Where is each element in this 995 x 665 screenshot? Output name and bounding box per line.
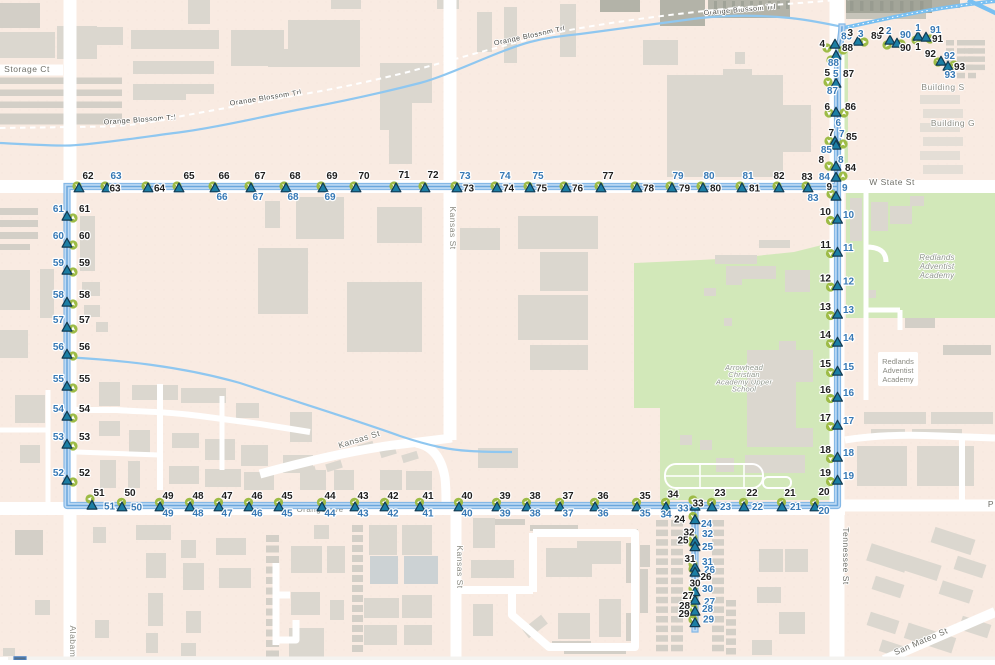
svg-text:24: 24 (674, 515, 686, 526)
svg-text:45: 45 (281, 491, 293, 502)
svg-text:67: 67 (254, 171, 266, 182)
svg-text:87: 87 (843, 69, 855, 80)
svg-text:6: 6 (835, 118, 841, 129)
svg-text:35: 35 (639, 491, 651, 502)
svg-text:8: 8 (838, 155, 844, 166)
svg-text:42: 42 (387, 491, 399, 502)
svg-text:Kansas St: Kansas St (448, 206, 458, 249)
svg-text:79: 79 (672, 171, 684, 182)
svg-text:32: 32 (702, 529, 714, 540)
svg-text:Adventist: Adventist (883, 366, 915, 375)
svg-text:18: 18 (820, 445, 832, 456)
svg-text:8: 8 (818, 155, 824, 166)
svg-text:W State St: W State St (869, 177, 915, 187)
svg-text:44: 44 (324, 491, 336, 502)
svg-text:39: 39 (499, 491, 511, 502)
svg-text:15: 15 (820, 359, 832, 370)
svg-text:Building S: Building S (921, 82, 964, 92)
svg-text:69: 69 (324, 192, 336, 203)
svg-text:90: 90 (900, 30, 912, 41)
svg-text:73: 73 (463, 184, 475, 195)
svg-text:25: 25 (702, 542, 714, 553)
svg-text:25: 25 (677, 536, 689, 547)
svg-text:49: 49 (162, 491, 174, 502)
svg-text:53: 53 (79, 432, 91, 443)
svg-text:7: 7 (828, 128, 834, 139)
svg-text:Kansas St: Kansas St (455, 545, 465, 588)
svg-text:84: 84 (819, 172, 831, 183)
svg-text:Redlands: Redlands (882, 357, 914, 366)
svg-text:86: 86 (845, 102, 857, 113)
svg-text:Adventist: Adventist (919, 262, 955, 271)
svg-text:38: 38 (529, 491, 541, 502)
svg-text:60: 60 (79, 231, 91, 242)
svg-text:65: 65 (183, 171, 195, 182)
svg-text:Building G: Building G (931, 118, 975, 128)
svg-text:58: 58 (53, 290, 65, 301)
svg-text:52: 52 (53, 468, 65, 479)
svg-text:93: 93 (944, 70, 956, 81)
svg-text:14: 14 (843, 333, 855, 344)
svg-text:31: 31 (684, 554, 696, 565)
svg-text:Alabama St: Alabama St (68, 626, 78, 660)
svg-text:76: 76 (572, 184, 584, 195)
svg-text:88: 88 (842, 43, 854, 54)
svg-text:75: 75 (532, 171, 544, 182)
svg-text:7: 7 (839, 129, 845, 140)
svg-text:1: 1 (915, 23, 921, 34)
svg-text:44: 44 (324, 509, 336, 520)
svg-text:51: 51 (104, 502, 116, 513)
svg-text:38: 38 (529, 509, 541, 520)
svg-text:22: 22 (752, 502, 764, 513)
svg-text:30: 30 (702, 584, 714, 595)
svg-text:77: 77 (602, 171, 614, 182)
svg-text:93: 93 (954, 62, 966, 73)
svg-text:67: 67 (252, 192, 264, 203)
svg-text:40: 40 (461, 509, 473, 520)
svg-text:Academy: Academy (919, 271, 956, 280)
svg-text:21: 21 (790, 502, 802, 513)
svg-text:52: 52 (79, 468, 91, 479)
svg-text:84: 84 (845, 163, 857, 174)
svg-text:61: 61 (79, 204, 91, 215)
svg-text:17: 17 (843, 416, 855, 427)
svg-text:9: 9 (826, 182, 832, 193)
svg-text:57: 57 (79, 315, 91, 326)
svg-text:55: 55 (79, 374, 91, 385)
svg-text:28: 28 (702, 604, 714, 615)
svg-text:Tennessee St: Tennessee St (841, 527, 851, 585)
svg-text:92: 92 (925, 49, 937, 60)
svg-text:48: 48 (192, 509, 204, 520)
svg-text:29: 29 (678, 609, 690, 620)
svg-text:3: 3 (847, 28, 853, 39)
svg-text:72: 72 (427, 170, 439, 181)
svg-text:29: 29 (703, 615, 715, 626)
svg-text:82: 82 (773, 171, 785, 182)
svg-text:75: 75 (536, 184, 548, 195)
svg-text:37: 37 (562, 509, 574, 520)
svg-text:50: 50 (131, 503, 143, 514)
svg-text:6: 6 (824, 102, 830, 113)
svg-text:54: 54 (79, 404, 91, 415)
svg-text:20: 20 (818, 506, 830, 517)
svg-text:20: 20 (818, 487, 830, 498)
svg-text:15: 15 (843, 362, 855, 373)
svg-text:90: 90 (900, 43, 912, 54)
svg-text:47: 47 (221, 509, 233, 520)
svg-text:37: 37 (562, 491, 574, 502)
svg-text:23: 23 (720, 502, 732, 513)
svg-text:83: 83 (801, 172, 813, 183)
svg-text:34: 34 (667, 490, 679, 501)
svg-text:5: 5 (824, 68, 830, 79)
svg-text:85: 85 (846, 132, 858, 143)
svg-text:40: 40 (461, 491, 473, 502)
svg-text:22: 22 (746, 488, 758, 499)
svg-text:64: 64 (154, 184, 166, 195)
svg-text:63: 63 (109, 184, 121, 195)
svg-text:3: 3 (858, 29, 864, 40)
svg-text:12: 12 (843, 277, 855, 288)
svg-text:Storage Ct: Storage Ct (4, 64, 50, 74)
svg-text:73: 73 (459, 171, 471, 182)
svg-text:19: 19 (843, 471, 855, 482)
svg-text:12: 12 (820, 274, 832, 285)
svg-text:53: 53 (53, 432, 65, 443)
svg-text:16: 16 (820, 385, 832, 396)
svg-text:92: 92 (944, 51, 956, 62)
svg-text:66: 66 (218, 171, 230, 182)
svg-text:49: 49 (162, 509, 174, 520)
svg-text:60: 60 (53, 231, 65, 242)
svg-text:Redlands: Redlands (919, 253, 954, 262)
svg-text:13: 13 (820, 302, 832, 313)
svg-text:17: 17 (820, 413, 832, 424)
svg-text:36: 36 (597, 491, 609, 502)
svg-text:23: 23 (714, 488, 726, 499)
svg-text:57: 57 (53, 315, 65, 326)
svg-text:81: 81 (749, 184, 761, 195)
svg-text:5: 5 (833, 69, 839, 80)
svg-text:43: 43 (357, 491, 369, 502)
svg-text:58: 58 (79, 290, 91, 301)
svg-text:66: 66 (216, 192, 228, 203)
svg-text:18: 18 (843, 448, 855, 459)
svg-text:19: 19 (820, 468, 832, 479)
svg-text:61: 61 (53, 204, 65, 215)
svg-text:74: 74 (499, 171, 511, 182)
svg-text:55: 55 (53, 374, 65, 385)
svg-text:87: 87 (827, 86, 839, 97)
svg-text:4: 4 (819, 39, 825, 50)
svg-text:16: 16 (843, 388, 855, 399)
svg-text:48: 48 (192, 491, 204, 502)
svg-text:9: 9 (842, 183, 848, 194)
svg-text:56: 56 (53, 342, 65, 353)
svg-text:50: 50 (124, 488, 136, 499)
svg-text:10: 10 (820, 207, 832, 218)
svg-text:42: 42 (387, 509, 399, 520)
svg-text:11: 11 (843, 243, 854, 254)
svg-text:56: 56 (79, 342, 91, 353)
svg-text:54: 54 (53, 404, 65, 415)
svg-text:26: 26 (700, 572, 712, 583)
svg-text:46: 46 (251, 509, 263, 520)
svg-text:1: 1 (915, 42, 921, 53)
svg-text:91: 91 (932, 34, 944, 45)
svg-text:14: 14 (820, 330, 832, 341)
svg-text:47: 47 (221, 491, 233, 502)
svg-text:33: 33 (677, 504, 689, 515)
svg-text:33: 33 (692, 499, 704, 510)
svg-text:34: 34 (660, 510, 672, 521)
svg-text:36: 36 (597, 509, 609, 520)
svg-text:69: 69 (326, 171, 338, 182)
svg-text:68: 68 (289, 171, 301, 182)
svg-text:79: 79 (679, 184, 691, 195)
svg-text:41: 41 (422, 491, 434, 502)
svg-text:85: 85 (821, 145, 833, 156)
svg-text:71: 71 (398, 170, 410, 181)
svg-text:Academy: Academy (882, 375, 914, 384)
svg-text:10: 10 (843, 210, 855, 221)
svg-text:78: 78 (643, 184, 655, 195)
svg-text:88: 88 (828, 58, 840, 69)
svg-text:39: 39 (499, 509, 511, 520)
svg-text:74: 74 (503, 184, 515, 195)
svg-text:13: 13 (843, 305, 855, 316)
svg-text:63: 63 (110, 171, 122, 182)
svg-text:11: 11 (820, 240, 831, 251)
svg-text:43: 43 (357, 509, 369, 520)
svg-text:2: 2 (886, 26, 892, 37)
svg-text:59: 59 (79, 258, 91, 269)
svg-text:83: 83 (807, 193, 819, 204)
svg-text:46: 46 (251, 491, 263, 502)
svg-text:68: 68 (287, 192, 299, 203)
svg-text:41: 41 (422, 509, 434, 520)
svg-text:35: 35 (639, 509, 651, 520)
svg-text:30: 30 (689, 579, 701, 590)
svg-text:21: 21 (784, 488, 796, 499)
svg-text:81: 81 (742, 171, 754, 182)
svg-text:School: School (732, 385, 756, 394)
svg-text:59: 59 (53, 258, 65, 269)
svg-text:70: 70 (358, 171, 370, 182)
svg-text:80: 80 (703, 171, 715, 182)
svg-text:P: P (988, 499, 994, 509)
svg-text:62: 62 (82, 171, 94, 182)
svg-text:45: 45 (281, 509, 293, 520)
svg-text:2: 2 (878, 26, 884, 37)
svg-text:51: 51 (93, 488, 105, 499)
svg-text:80: 80 (710, 184, 722, 195)
